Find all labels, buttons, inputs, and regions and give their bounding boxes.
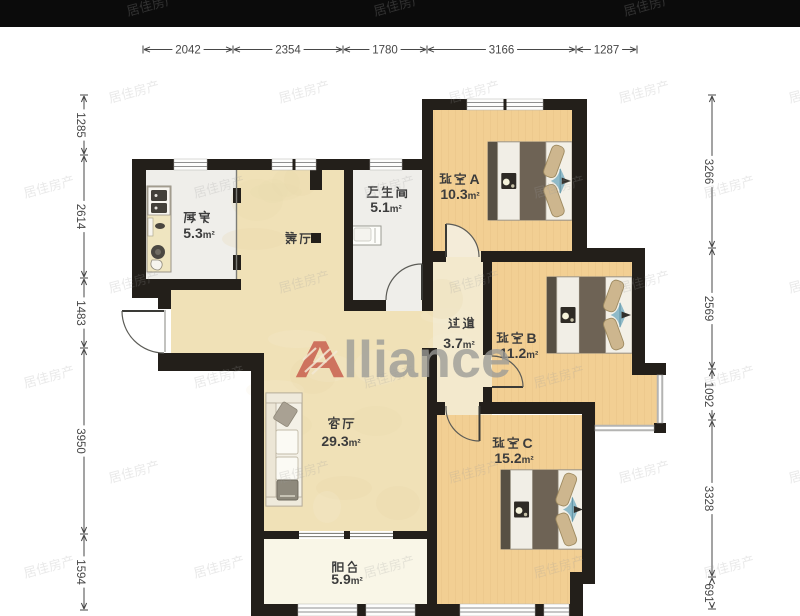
- svg-text:2042: 2042: [175, 45, 201, 57]
- svg-text:3166: 3166: [489, 45, 515, 57]
- svg-text:2569: 2569: [702, 296, 714, 322]
- svg-text:B: B: [526, 330, 536, 346]
- svg-text:1483: 1483: [74, 300, 86, 326]
- svg-text:691: 691: [702, 583, 714, 602]
- svg-text:3328: 3328: [702, 486, 714, 512]
- svg-text:1780: 1780: [372, 45, 398, 57]
- svg-text:1285: 1285: [74, 112, 86, 138]
- svg-text:2354: 2354: [275, 45, 301, 57]
- svg-text:3266: 3266: [702, 159, 714, 185]
- svg-text:2614: 2614: [74, 204, 86, 230]
- svg-text:1287: 1287: [594, 45, 620, 57]
- svg-text:1594: 1594: [74, 559, 86, 585]
- svg-text:C: C: [522, 435, 532, 451]
- svg-text:3950: 3950: [74, 428, 86, 454]
- svg-text:A: A: [469, 171, 479, 187]
